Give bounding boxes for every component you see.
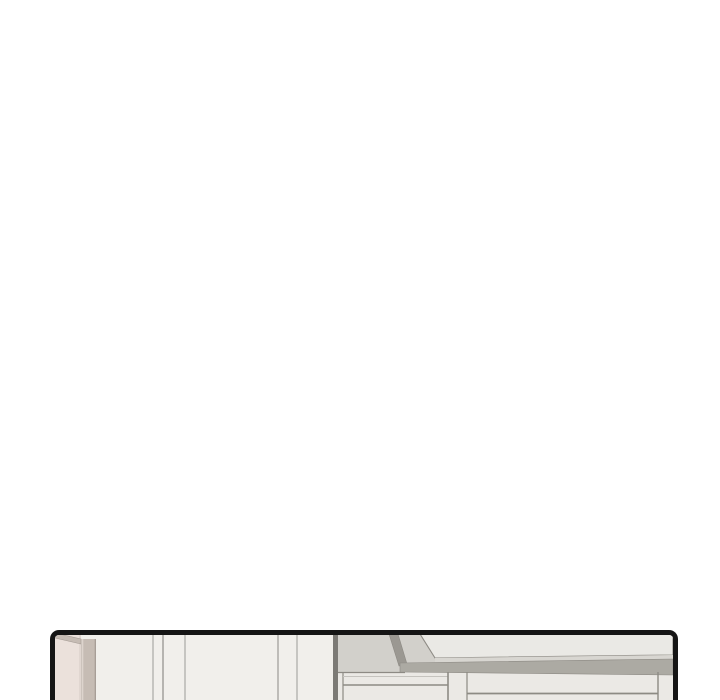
webtoon-page — [0, 0, 720, 700]
wall-corner-edge — [333, 635, 338, 700]
kitchen-interior-artwork — [55, 635, 673, 700]
door-panel — [55, 635, 81, 700]
range-hood-face — [420, 635, 673, 658]
comic-panel — [50, 630, 678, 700]
